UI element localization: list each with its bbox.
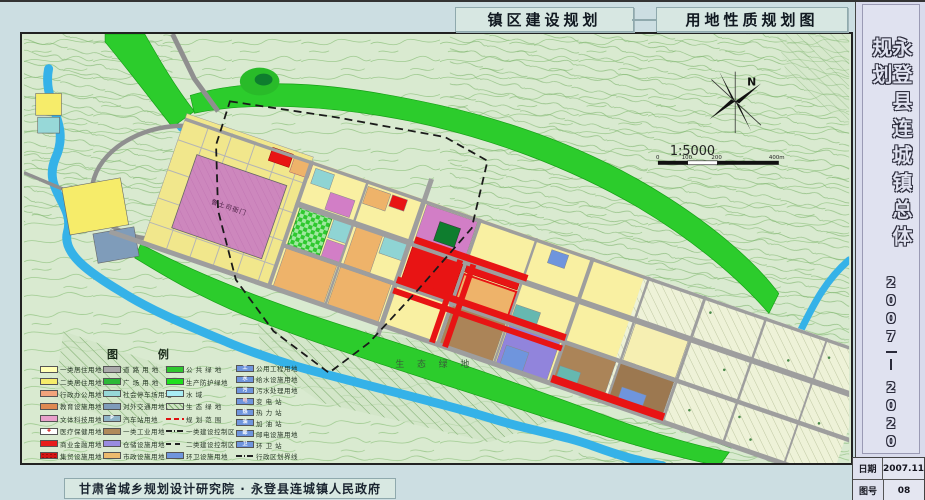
legend-label: 规 划 范 围 [186,414,222,424]
legend-swatch-icon: 污 [242,388,247,393]
legend-label: 广 场 用 地 [123,377,159,387]
legend-swatch-icon: 邮 [242,431,247,436]
planning-sheet: 鲁土司衙门 [0,0,925,500]
legend-item: ✚医疗保健用地 [40,425,102,437]
sidebar: 永登县连城镇总体规划 2007 2020 [855,2,925,500]
legend-label: 社会停车场用地 [123,389,172,399]
legend-label: 文体科技用地 [60,414,102,424]
legend-swatch [40,390,58,397]
legend-swatch [103,403,121,410]
legend-label: 加 油 站 [256,418,282,428]
legend-swatch: 热 [236,409,254,416]
legend-swatch [40,378,58,385]
legend-item: 行政办公用地 [40,388,102,400]
table-row-number: 图号 08 [853,480,924,500]
legend-item: 热热 力 站 [236,407,298,418]
legend-swatch [103,366,121,373]
legend-swatch: 污 [236,387,254,394]
legend-swatch [103,378,121,385]
plan-title-vertical: 永登县连城镇总体规划 [871,37,911,268]
date-label: 日期 [853,458,883,479]
legend-swatch: 水 [236,376,254,383]
legend-item: 水 域 [166,388,235,400]
legend-label: 生产防护绿地 [186,377,228,387]
legend-label: 变 电 站 [256,396,282,406]
scale-text: 1:5000 [670,144,715,159]
legend-item: 一类居住用地 [40,363,102,375]
legend-swatch [166,390,184,397]
legend-item: 二类居住用地 [40,375,102,387]
legend-label: 行政办公用地 [60,389,102,399]
legend-item: 社会停车场用地 [103,388,172,400]
legend-column-2: 道 路 用 地广 场 用 地社会停车场用地对外交通用地P汽车站用地一类工业用地仓… [103,363,172,462]
legend-label: 污水处理用地 [256,385,298,395]
legend-label: 邮电设施用地 [256,429,298,439]
legend-label: 道 路 用 地 [123,364,159,374]
legend-item: 商业金融用地 [40,437,102,449]
legend-item: 行政区划界线 [236,450,298,461]
legend-item: 环卫设施用地 [166,450,235,462]
map-frame: 鲁土司衙门 [20,32,853,465]
legend-item: 广 场 用 地 [103,375,172,387]
legend-label: 环卫设施用地 [186,451,228,461]
legend-swatch [103,428,121,435]
legend-label: 二类建设控制区 [186,439,235,449]
scale-tick: 0 [656,155,660,161]
legend-item: 卫环 卫 站 [236,439,298,450]
legend-label: 给水设施用地 [256,374,298,384]
plan-years-end: 2020 [885,381,898,453]
legend-title: 图 例 [107,346,187,362]
legend-swatch [103,440,121,447]
legend-swatch [166,443,184,445]
legend-label: 仓储设施用地 [123,439,165,449]
year-separator [886,348,897,373]
legend-swatch-icon: 卫 [242,442,247,447]
legend-label: 一类工业用地 [123,426,165,436]
legend-swatch [166,452,184,459]
legend-label: 一类建设控制区 [186,426,235,436]
eco-green-label: 生 态 绿 地 [395,358,474,370]
legend-swatch [40,440,58,447]
legend-swatch-icon: 热 [242,410,247,415]
legend-item: 对外交通用地 [103,400,172,412]
legend-swatch: 油 [236,419,254,426]
legend-label: 商业金融用地 [60,439,102,449]
legend-swatch [40,415,58,422]
park-hill-core [255,74,273,86]
legend-label: 医疗保健用地 [60,426,102,436]
north-label: N [747,76,756,89]
legend-item: 市政设施用地 [103,450,172,462]
legend-item: 水给水设施用地 [236,374,298,385]
legend-item: P汽车站用地 [103,413,172,425]
legend-swatch-icon: 工 [242,366,247,371]
legend-swatch: P [103,415,121,422]
scale-tick: 100 [682,155,693,161]
title-connector [632,19,656,21]
legend-item: 仓储设施用地 [103,437,172,449]
legend-label: 公 共 绿 地 [186,364,222,374]
legend-swatch-icon: 水 [242,377,247,382]
legend-swatch [40,452,58,459]
legend-swatch [166,403,184,410]
scale-tick: 400m [769,155,785,161]
scale-tick: 200 [711,155,722,161]
legend-swatch [166,366,184,373]
legend-item: 油加 油 站 [236,417,298,428]
legend-swatch-icon: ✚ [47,429,51,434]
legend-item: 一类工业用地 [103,425,172,437]
sidebar-panel: 永登县连城镇总体规划 2007 2020 [862,4,920,454]
legend-item: 工公用工程用地 [236,363,298,374]
legend-item: 污污水处理用地 [236,385,298,396]
legend-item: 电变 电 站 [236,396,298,407]
legend-item: 规 划 范 围 [166,413,235,425]
legend-column-1: 一类居住用地二类居住用地行政办公用地教育设施用地文体科技用地✚医疗保健用地商业金… [40,363,102,462]
legend-swatch [40,403,58,410]
legend-item: 道 路 用 地 [103,363,172,375]
legend-swatch: ✚ [40,428,58,435]
legend-column-4: 工公用工程用地水给水设施用地污污水处理用地电变 电 站热热 力 站油加 油 站邮… [236,363,298,461]
legend-swatch: 卫 [236,441,254,448]
legend-label: 一类居住用地 [60,364,102,374]
title-plan-type: 镇区建设规划 [455,7,634,32]
legend-swatch [103,390,121,397]
legend-column-3: 公 共 绿 地生产防护绿地水 域生 态 绿 地规 划 范 围一类建设控制区二类建… [166,363,235,462]
legend-swatch [166,378,184,385]
legend-label: 生 态 绿 地 [186,401,222,411]
table-row-date: 日期 2007.11 [853,458,924,480]
legend-swatch [166,418,184,420]
legend-swatch-icon: 油 [242,420,247,425]
legend-item: 文体科技用地 [40,413,102,425]
legend-item: 教育设施用地 [40,400,102,412]
legend-item: 公 共 绿 地 [166,363,235,375]
legend-item: 集贸设施用地 [40,450,102,462]
legend-label: 行政区划界线 [256,451,298,461]
legend-swatch-icon: P [110,416,114,421]
legend-label: 市政设施用地 [123,451,165,461]
legend-swatch [236,455,254,457]
legend-label: 对外交通用地 [123,401,165,411]
legend-label: 热 力 站 [256,407,282,417]
title-block-table: 日期 2007.11 图号 08 [852,457,925,500]
legend-label: 集贸设施用地 [60,451,102,461]
legend: 图 例 一类居住用地二类居住用地行政办公用地教育设施用地文体科技用地✚医疗保健用… [37,346,343,464]
legend-label: 二类居住用地 [60,377,102,387]
legend-item: 生产防护绿地 [166,375,235,387]
sheet-no-label: 图号 [853,480,884,500]
legend-label: 水 域 [186,389,203,399]
date-value: 2007.11 [883,458,924,479]
legend-item: 邮邮电设施用地 [236,428,298,439]
legend-item: 一类建设控制区 [166,425,235,437]
legend-swatch: 邮 [236,430,254,437]
legend-item: 生 态 绿 地 [166,400,235,412]
legend-label: 环 卫 站 [256,440,282,450]
legend-swatch [166,430,184,432]
legend-label: 教育设施用地 [60,401,102,411]
title-sheet-name: 用地性质规划图 [656,7,848,32]
legend-swatch [40,366,58,373]
legend-swatch [103,452,121,459]
plan-years-start: 2007 [885,276,898,348]
legend-label: 汽车站用地 [123,414,158,424]
legend-swatch: 电 [236,398,254,405]
credit-bar: 甘肃省城乡规划设计研究院 · 永登县连城镇人民政府 [64,478,396,499]
legend-label: 公用工程用地 [256,363,298,373]
legend-item: 二类建设控制区 [166,437,235,449]
sheet-no-value: 08 [884,480,924,500]
legend-swatch: 工 [236,365,254,372]
legend-swatch-icon: 电 [242,399,247,404]
